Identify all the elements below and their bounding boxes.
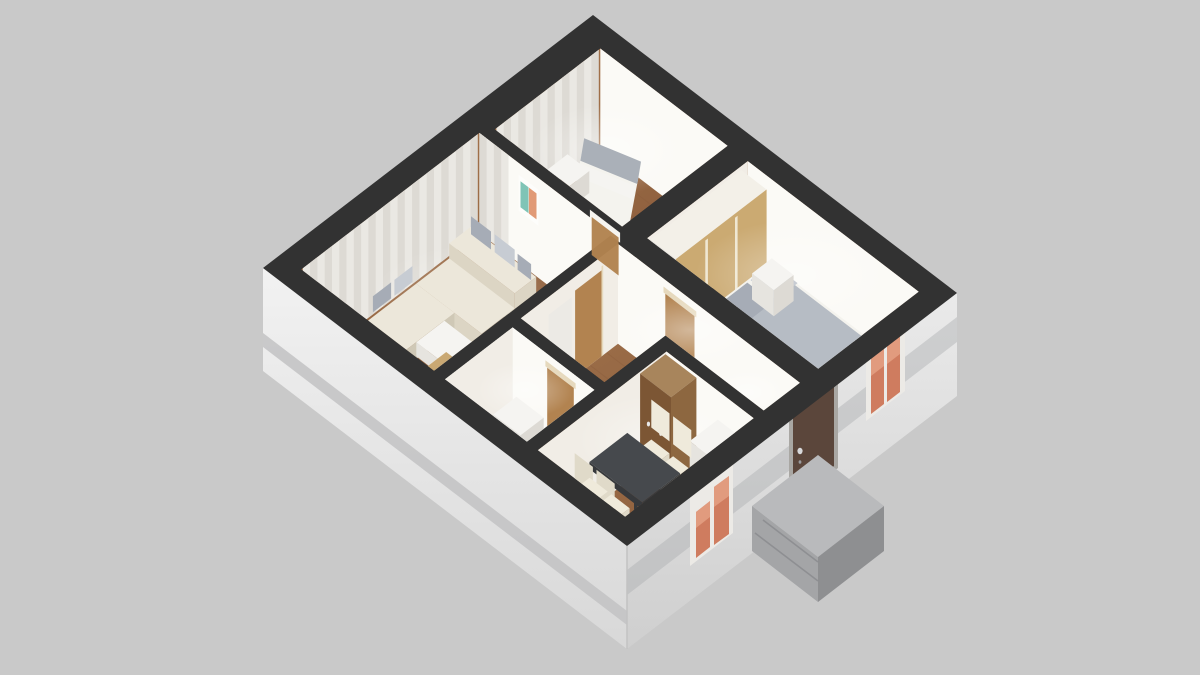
cabinet-handle — [647, 422, 650, 427]
entrance-keyhole — [799, 460, 802, 464]
floorplan-3d-render — [0, 0, 1200, 675]
curtain-fold — [479, 133, 486, 239]
scene-canvas — [0, 0, 1200, 675]
door-frame-living — [602, 265, 604, 356]
entrance-door-handle — [797, 448, 802, 454]
curtain-fold — [494, 144, 501, 250]
